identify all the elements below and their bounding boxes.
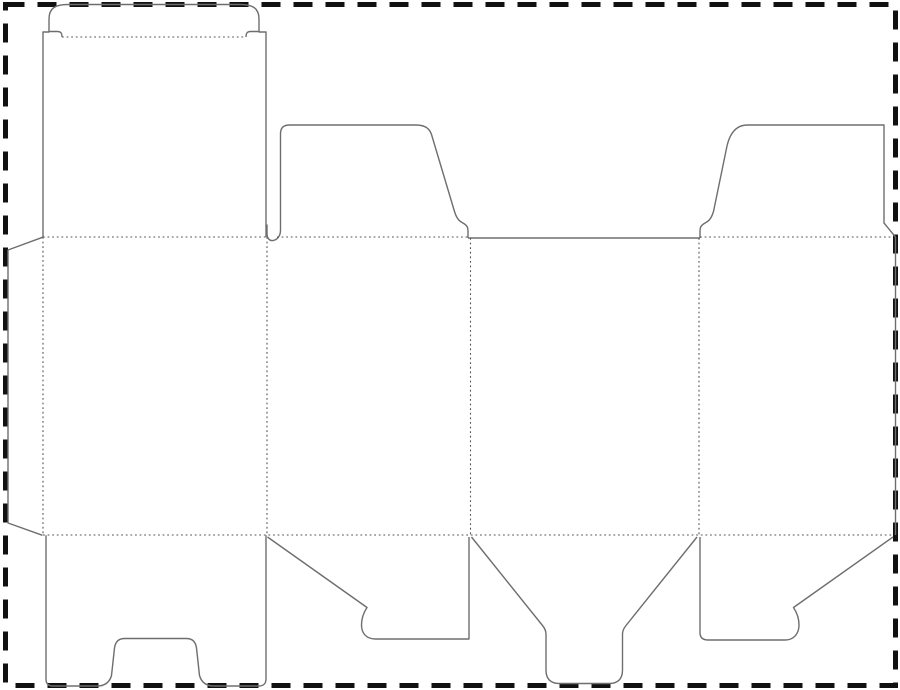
glue-flap-outline bbox=[8, 237, 43, 535]
bottom-dust-flap-left-outline bbox=[268, 537, 470, 639]
bottom-dust-flap-right-outline bbox=[700, 537, 893, 640]
tuck-shoulder-slit-left bbox=[49, 32, 62, 38]
back-panel-and-lid-outline bbox=[43, 5, 266, 238]
tuck-shoulder-slit-right bbox=[246, 32, 259, 38]
top-dust-flap-left-outline bbox=[267, 125, 468, 241]
top-dust-flap-right-outline bbox=[700, 125, 896, 238]
dieline-canvas bbox=[0, 0, 900, 690]
sheet-dashed-border bbox=[6, 5, 896, 686]
dieline-svg bbox=[0, 0, 900, 690]
bottom-lock-flap-outline bbox=[46, 535, 266, 686]
bottom-tongue-flap-outline bbox=[472, 537, 698, 684]
